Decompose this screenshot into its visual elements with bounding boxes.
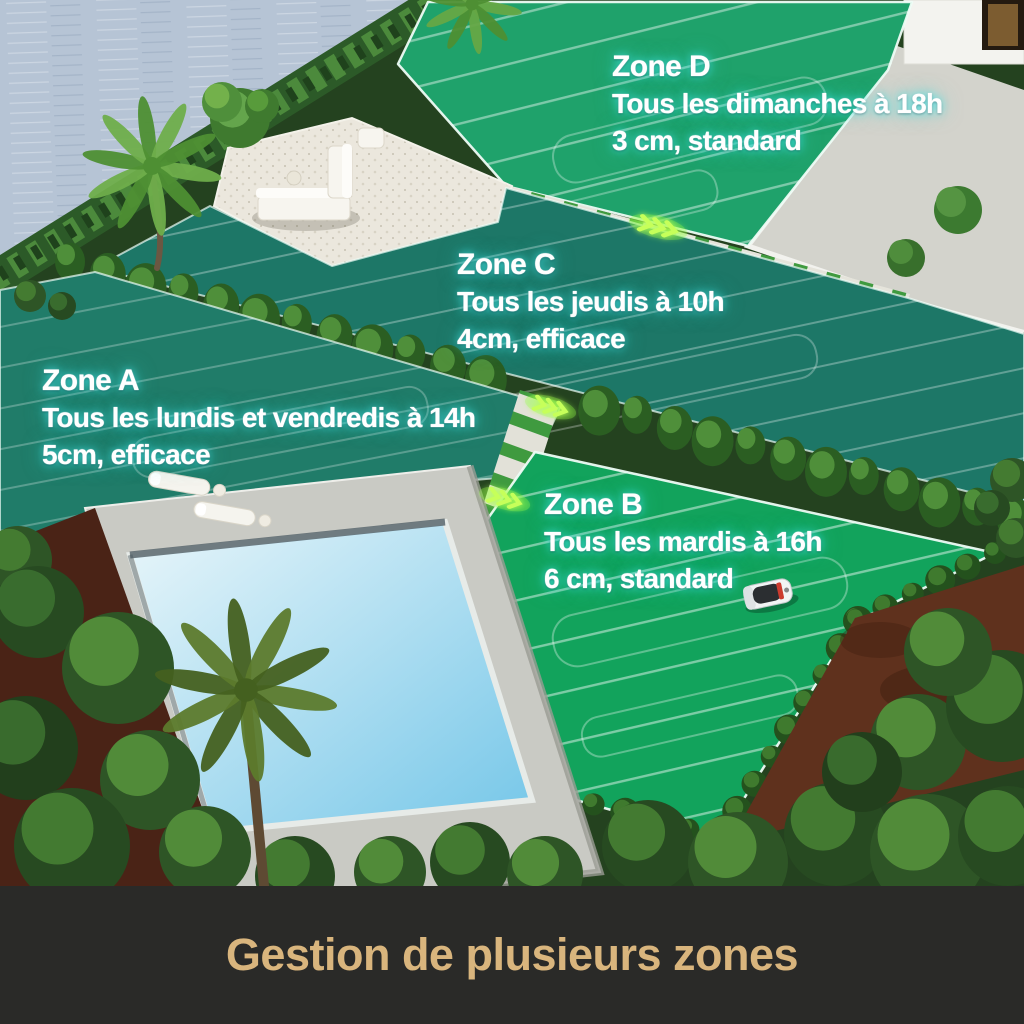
zone-c-label: Zone C Tous les jeudis à 10h 4cm, effica…	[457, 246, 724, 357]
zone-d-name: Zone D	[612, 48, 943, 85]
zone-c-cut-setting: 4cm, efficace	[457, 320, 724, 357]
zone-b-name: Zone B	[544, 486, 822, 523]
caption-banner: Gestion de plusieurs zones	[0, 886, 1024, 1024]
zone-d-label: Zone D Tous les dimanches à 18h 3 cm, st…	[612, 48, 943, 159]
zone-a-label: Zone A Tous les lundis et vendredis à 14…	[42, 362, 475, 473]
zone-c-schedule: Tous les jeudis à 10h	[457, 283, 724, 320]
zone-a-cut-setting: 5cm, efficace	[42, 436, 475, 473]
zone-b-cut-setting: 6 cm, standard	[544, 560, 822, 597]
zone-a-schedule: Tous les lundis et vendredis à 14h	[42, 399, 475, 436]
zone-d-cut-setting: 3 cm, standard	[612, 122, 943, 159]
zone-d-schedule: Tous les dimanches à 18h	[612, 85, 943, 122]
zone-a-name: Zone A	[42, 362, 475, 399]
product-image: Zone D Tous les dimanches à 18h 3 cm, st…	[0, 0, 1024, 1024]
zone-c-name: Zone C	[457, 246, 724, 283]
zone-b-label: Zone B Tous les mardis à 16h 6 cm, stand…	[544, 486, 822, 597]
caption-title: Gestion de plusieurs zones	[226, 929, 798, 981]
zone-b-schedule: Tous les mardis à 16h	[544, 523, 822, 560]
